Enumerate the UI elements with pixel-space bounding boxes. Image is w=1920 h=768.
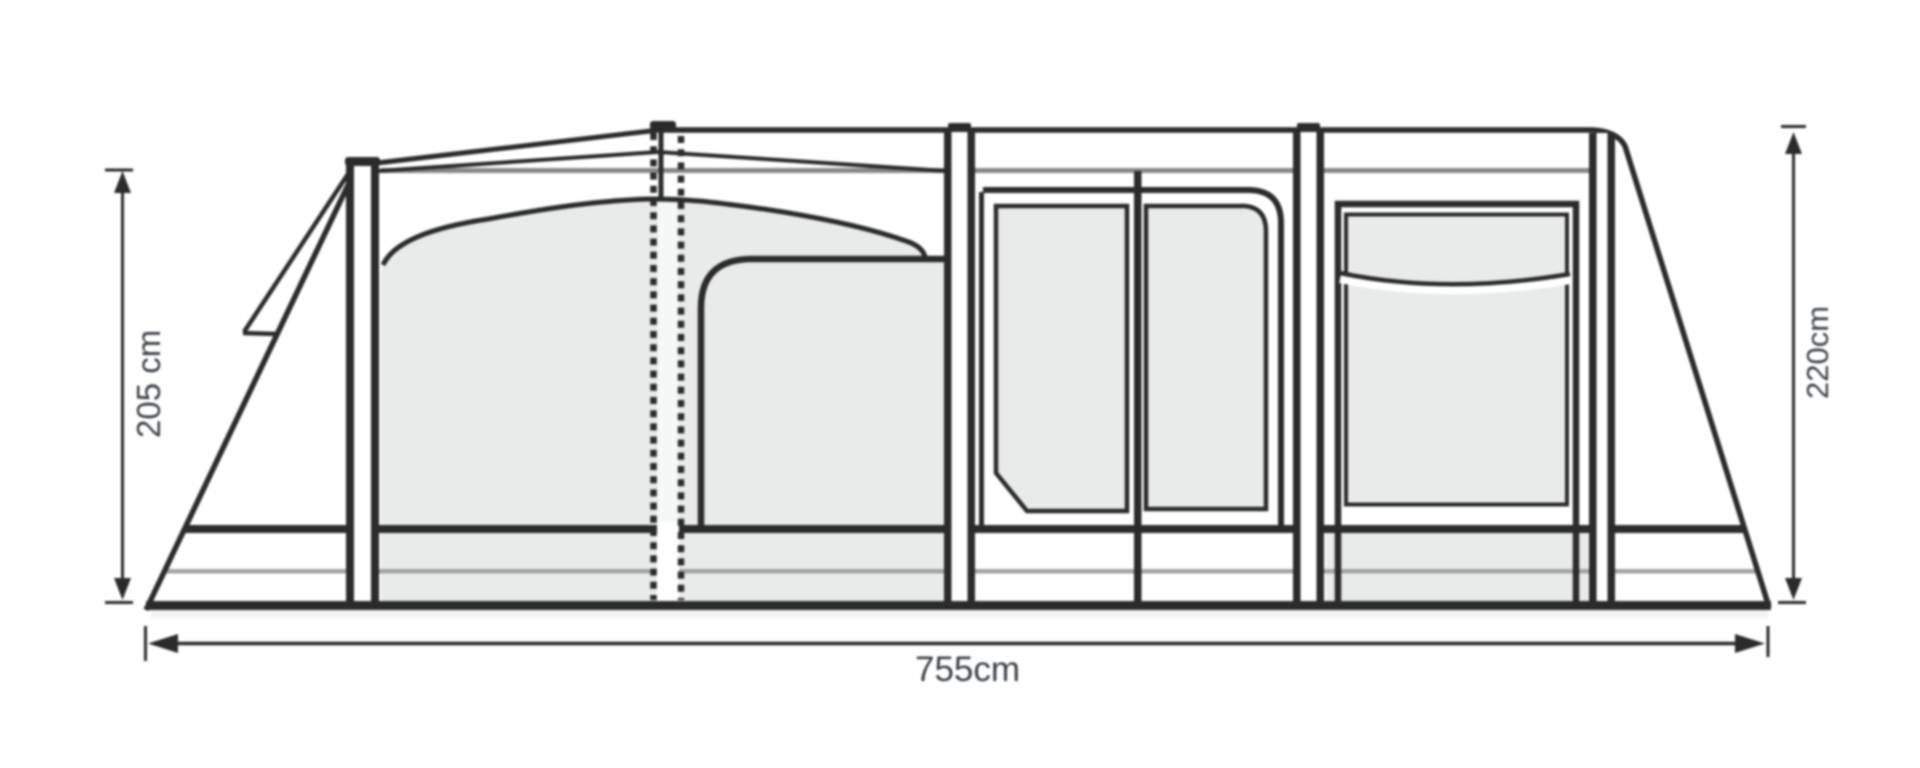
svg-text:755cm: 755cm [915,650,1020,689]
svg-text:220cm: 220cm [1800,306,1835,399]
svg-text:205 cm: 205 cm [130,330,167,438]
